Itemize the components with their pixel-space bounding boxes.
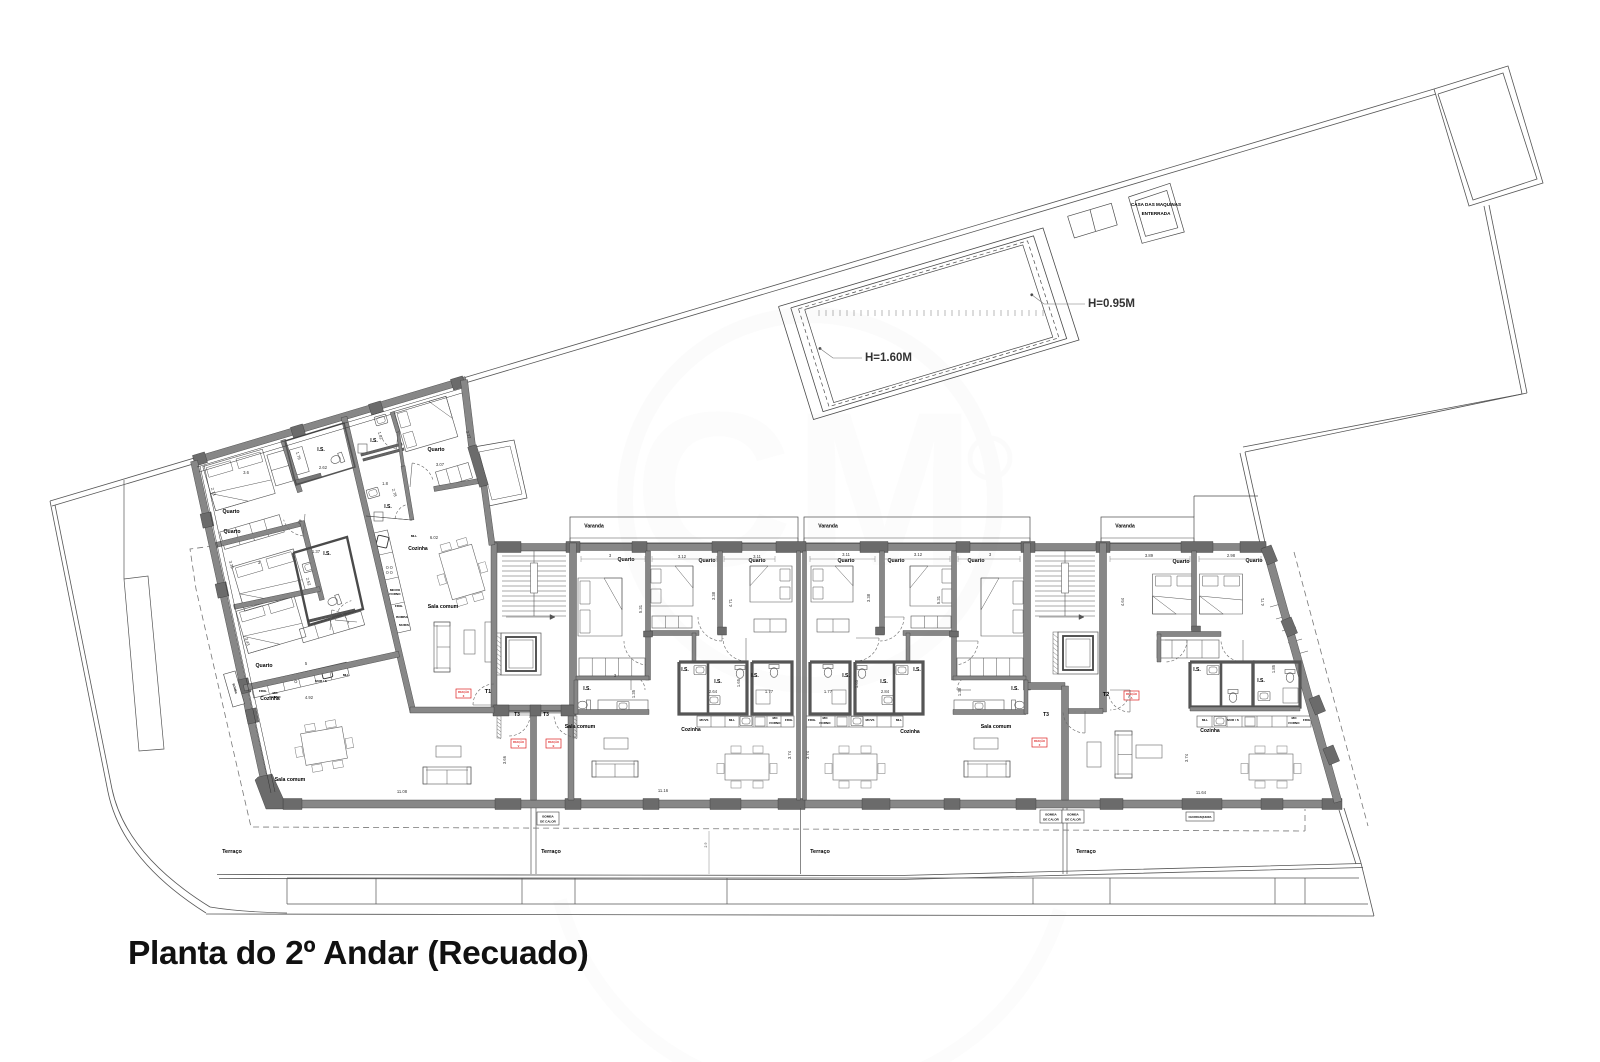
svg-text:E: E [553,744,555,748]
svg-text:T3: T3 [543,712,549,718]
svg-text:I.S.: I.S. [384,504,392,510]
svg-text:Quarto: Quarto [223,529,240,535]
svg-text:I.S.: I.S. [1193,667,1201,673]
svg-text:Terraço: Terraço [541,849,561,855]
svg-text:11.64: 11.64 [1196,790,1207,795]
svg-text:BOMBA: BOMBA [396,615,408,619]
svg-text:Terraço: Terraço [222,849,242,855]
svg-text:11.08: 11.08 [397,789,408,794]
svg-text:Cozinha: Cozinha [1200,728,1220,734]
svg-text:Sala comum: Sala comum [981,724,1012,730]
svg-text:X: X [463,694,465,698]
svg-text:6.02: 6.02 [430,535,439,540]
svg-text:1.35: 1.35 [631,689,636,698]
svg-text:Terraço: Terraço [810,849,830,855]
svg-text:FORNO: FORNO [1288,721,1300,725]
svg-text:MO: MO [1292,716,1298,720]
svg-text:ENTERRADA: ENTERRADA [1142,211,1172,216]
svg-text:H=1.60M: H=1.60M [865,352,912,364]
svg-text:1.37: 1.37 [312,549,321,554]
svg-text:I.S.: I.S. [1011,686,1019,692]
svg-text:11.16: 11.16 [658,788,669,793]
svg-text:MLL: MLL [896,718,902,722]
svg-text:CM: CM [634,366,976,612]
svg-text:Varanda: Varanda [1115,524,1135,530]
svg-text:Quarto: Quarto [222,509,239,515]
svg-text:FORNO: FORNO [769,721,781,725]
svg-text:A: A [1131,696,1133,700]
svg-text:MUVS: MUVS [700,718,709,722]
svg-text:MLL: MLL [1202,718,1208,722]
svg-text:BOMBA: BOMBA [1067,813,1079,817]
svg-text:Cozinha: Cozinha [408,546,428,552]
svg-text:DE CALOR: DE CALOR [540,820,557,824]
svg-text:I.S.: I.S. [913,667,921,673]
svg-text:FRIG.: FRIG. [785,718,793,722]
svg-text:MUR / S: MUR / S [315,679,327,683]
svg-text:I.S.: I.S. [323,551,331,557]
svg-text:MO: MO [773,716,779,720]
svg-text:T3: T3 [1043,712,1049,718]
svg-text:1.85: 1.85 [1271,664,1276,673]
svg-text:Quarto: Quarto [1172,559,1189,565]
svg-text:T1: T1 [485,689,491,695]
svg-text:I.S.: I.S. [681,667,689,673]
svg-text:BOMBA: BOMBA [542,815,554,819]
svg-text:3.74: 3.74 [1184,753,1189,762]
svg-text:2.62: 2.62 [319,465,328,470]
svg-text:FRIG.: FRIG. [808,718,816,722]
svg-text:3.74: 3.74 [805,750,810,759]
svg-text:MLL: MLL [411,534,417,538]
svg-text:3.66: 3.66 [502,755,507,764]
svg-text:3.89: 3.89 [1145,553,1154,558]
svg-text:MUVS: MUVS [866,718,875,722]
svg-text:MUR / S: MUR / S [1227,718,1239,722]
svg-text:FORNO: FORNO [819,721,831,725]
svg-text:2.84: 2.84 [881,689,890,694]
svg-text:Planta do 2º Andar (Recuado): Planta do 2º Andar (Recuado) [128,935,589,972]
svg-text:4.92: 4.92 [305,695,314,700]
svg-text:I.S.: I.S. [317,447,325,453]
svg-text:1.38: 1.38 [957,687,962,696]
svg-text:1.77: 1.77 [765,689,774,694]
svg-text:Sala comum: Sala comum [565,724,596,730]
svg-text:2.64: 2.64 [709,689,718,694]
svg-text:FORNO: FORNO [389,592,401,596]
svg-text:I.S.: I.S. [370,438,378,444]
svg-text:Varanda: Varanda [584,524,604,530]
svg-text:I.S.: I.S. [714,679,722,685]
svg-text:3.6: 3.6 [243,470,249,475]
svg-text:2.98: 2.98 [1227,553,1236,558]
svg-text:T2: T2 [1103,692,1109,698]
svg-text:Sala comum: Sala comum [428,604,459,610]
svg-text:FRIG.: FRIG. [1303,718,1311,722]
svg-text:CASA DAS MAQUINAS: CASA DAS MAQUINAS [1131,202,1181,207]
svg-text:MLL: MLL [343,673,349,677]
svg-text:MUR/S: MUR/S [399,623,409,627]
svg-text:DE CALOR: DE CALOR [1065,818,1082,822]
svg-text:I.S.: I.S. [1257,678,1265,684]
svg-text:V: V [518,744,520,748]
svg-text:CHURRASQUEIRA: CHURRASQUEIRA [1188,815,1211,819]
svg-text:Quarto: Quarto [427,447,444,453]
svg-text:I.S.: I.S. [583,686,591,692]
svg-text:Quarto: Quarto [255,663,272,669]
svg-text:Terraço: Terraço [1076,849,1096,855]
svg-text:1.8: 1.8 [382,481,388,486]
svg-text:Cozinha: Cozinha [900,729,920,735]
svg-text:4.64: 4.64 [1120,597,1125,606]
svg-text:DE CALOR: DE CALOR [1043,818,1060,822]
svg-text:2.9: 2.9 [704,843,708,848]
svg-text:FORNO: FORNO [269,695,281,699]
svg-text:3.07: 3.07 [436,462,445,467]
svg-text:I.S.: I.S. [880,679,888,685]
svg-text:MLL: MLL [729,718,735,722]
svg-text:3.74: 3.74 [787,750,792,759]
svg-text:H=0.95M: H=0.95M [1088,298,1135,310]
svg-text:Sala comum: Sala comum [275,777,306,783]
svg-text:FRIG.: FRIG. [259,689,267,693]
svg-text:FRIG.: FRIG. [395,604,403,608]
svg-text:Cozinha: Cozinha [681,727,701,733]
svg-text:MO: MO [823,716,829,720]
svg-text:4.71: 4.71 [1260,597,1265,606]
svg-text:BOMBA: BOMBA [1045,813,1057,817]
